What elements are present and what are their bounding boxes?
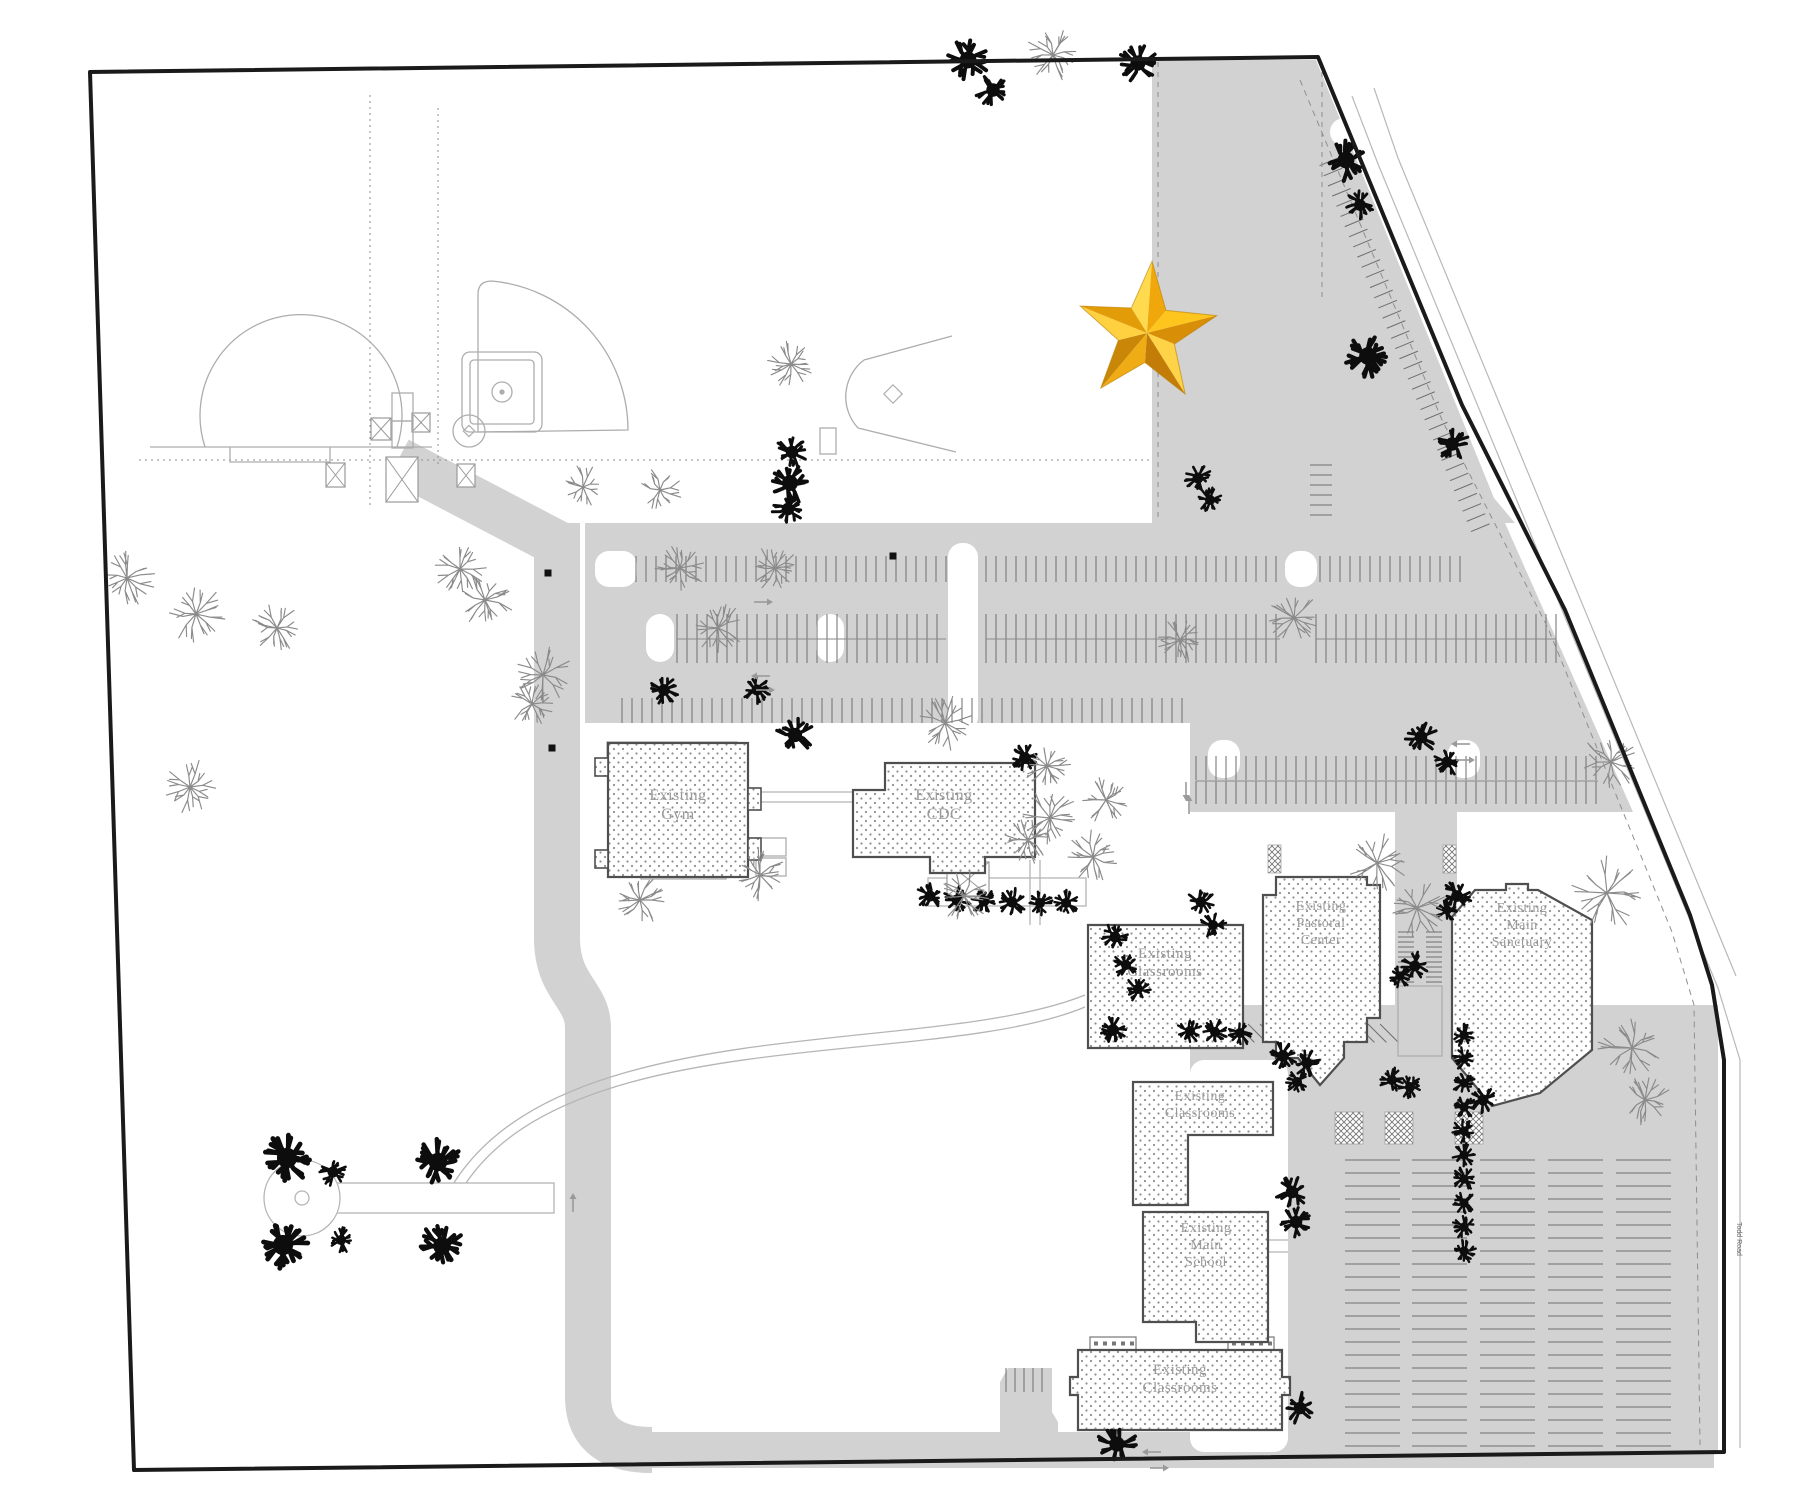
tree-light-icon (768, 342, 811, 386)
tree-light-icon (1068, 830, 1116, 880)
tree-dark-icon (1030, 892, 1053, 916)
tree-dark-icon (1000, 888, 1024, 914)
tree-dark-icon (918, 883, 939, 906)
building-label: Existing (1181, 1221, 1232, 1236)
tree-dark-icon (264, 1226, 308, 1269)
building-existing-cdc: ExistingCDC (853, 763, 1035, 873)
tree-dark-icon (332, 1227, 351, 1252)
building-label: Main (1506, 918, 1538, 933)
tree-light-icon (107, 551, 154, 604)
building-existing-classrooms-bottom: ExistingClassrooms (1070, 1350, 1290, 1430)
building-label: Classrooms (1142, 1380, 1217, 1396)
tree-light-icon (170, 588, 225, 642)
building-existing-gym: ExistingGym (595, 743, 761, 877)
tree-dark-icon (772, 498, 800, 523)
site-dot (549, 745, 556, 752)
building-label: Existing (1138, 946, 1192, 962)
tree-light-icon (435, 547, 486, 591)
tree-dark-icon (976, 77, 1004, 105)
building-label: Existing (1497, 901, 1548, 916)
building-label: Classrooms (1127, 964, 1202, 980)
tree-dark-icon (421, 1226, 461, 1262)
building-label: Pastoral (1296, 916, 1345, 931)
side-road-label: Todd Road (1735, 1222, 1742, 1256)
tree-dark-icon (417, 1139, 458, 1182)
building-label: Existing (1175, 1089, 1226, 1104)
tree-dark-icon (1055, 890, 1077, 913)
tree-light-icon (1083, 778, 1127, 821)
building-label: Center (1301, 933, 1341, 948)
tree-light-icon (253, 605, 298, 649)
building-label: CDC (927, 806, 961, 823)
tree-light-icon (566, 466, 598, 505)
building-existing-main-school: ExistingMainSchool (1143, 1212, 1268, 1342)
building-label: School (1185, 1255, 1227, 1270)
site-dot (545, 570, 552, 577)
site-dot (890, 553, 897, 560)
building-label: Existing (649, 787, 706, 804)
tree-dark-icon (1189, 891, 1213, 913)
roads-parking-layer (398, 60, 1718, 1452)
site-plan-page: ExistingGymExistingCDCExistingClassrooms… (0, 0, 1800, 1500)
building-label: Main (1190, 1238, 1222, 1253)
site-plan-svg: ExistingGymExistingCDCExistingClassrooms… (0, 0, 1800, 1500)
tree-dark-icon (778, 438, 805, 467)
building-label: Existing (1153, 1362, 1207, 1378)
building-label: Sanctuary (1492, 935, 1552, 950)
tree-dark-icon (1121, 46, 1155, 80)
tree-light-icon (167, 761, 216, 813)
tree-light-icon (642, 470, 681, 508)
building-label: Gym (661, 806, 695, 823)
building-label: Classrooms (1165, 1106, 1235, 1121)
tree-light-icon (619, 880, 664, 922)
building-label: Existing (1296, 899, 1347, 914)
tree-light-icon (1029, 31, 1076, 80)
building-label: Existing (915, 787, 972, 804)
